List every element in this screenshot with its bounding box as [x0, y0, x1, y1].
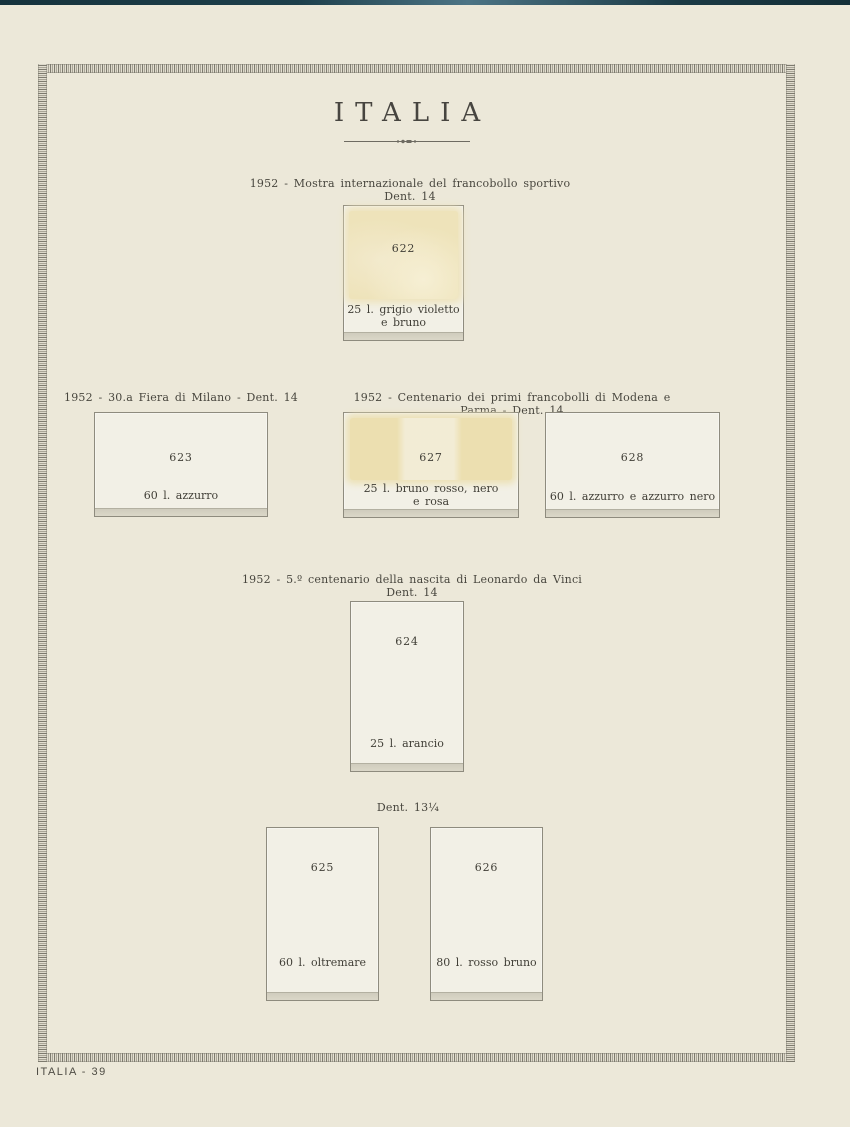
section-heading-leonardo: 1952 - 5.º centenario della nascita di L…: [2, 573, 822, 599]
stamp-caption: 80 l. rosso bruno: [431, 957, 542, 970]
page-footer: ITALIA - 39: [36, 1066, 107, 1078]
stamp-slot-627: 627 25 l. bruno rosso, nero e rosa: [343, 412, 519, 518]
section-heading-dent-13-1-4: Dent. 13¼: [0, 801, 816, 814]
stamp-number: 625: [267, 861, 378, 874]
stamp-number: 628: [546, 451, 719, 464]
mount-pocket-edge: [344, 509, 518, 517]
stamp-caption: 25 l. grigio violetto e bruno: [344, 304, 463, 329]
caption-line: 25 l. grigio violetto: [344, 304, 463, 317]
mount-pocket-edge: [546, 509, 719, 517]
stamp-slot-624: 624 25 l. arancio: [350, 601, 464, 772]
title-block: ITALIA: [0, 98, 814, 150]
ghost-stamp-image: [350, 418, 512, 480]
stamp-slot-622: 622 25 l. grigio violetto e bruno: [343, 205, 464, 341]
mount-pocket-edge: [351, 763, 463, 771]
heading-dent: Dent. 14: [2, 586, 822, 599]
border-top-band: [38, 64, 795, 73]
stamp-number: 624: [351, 635, 463, 648]
stamp-caption: 25 l. bruno rosso, nero e rosa: [344, 483, 518, 508]
stamp-number: 627: [344, 451, 518, 464]
mount-pocket-edge: [95, 508, 267, 516]
mount-pocket-edge: [267, 992, 378, 1000]
stamp-caption: 60 l. azzurro e azzurro nero: [546, 491, 719, 504]
border-right-band: [786, 64, 795, 1062]
stamp-caption: 25 l. arancio: [351, 738, 463, 751]
stamp-caption: 60 l. oltremare: [267, 957, 378, 970]
caption-line: e bruno: [344, 317, 463, 330]
stamp-number: 623: [95, 451, 267, 464]
section-heading-fiera-milano: 1952 - 30.a Fiera di Milano - Dent. 14: [0, 391, 362, 404]
heading-dent: Dent. 13¼: [0, 801, 816, 814]
scanner-edge: [0, 0, 850, 5]
stamp-caption: 60 l. azzurro: [95, 490, 267, 503]
page-title: ITALIA: [0, 98, 814, 128]
stamp-slot-628: 628 60 l. azzurro e azzurro nero: [545, 412, 720, 518]
stamp-number: 626: [431, 861, 542, 874]
section-heading-sportivo: 1952 - Mostra internazionale del francob…: [0, 177, 820, 203]
heading-dent: Dent. 14: [0, 190, 820, 203]
stamp-slot-623: 623 60 l. azzurro: [94, 412, 268, 517]
caption-line: e rosa: [344, 496, 518, 509]
caption-line: 25 l. bruno rosso, nero: [344, 483, 518, 496]
stamp-number: 622: [344, 242, 463, 255]
heading-line: 1952 - 30.a Fiera di Milano - Dent. 14: [0, 391, 362, 404]
heading-line: 1952 - Mostra internazionale del francob…: [0, 177, 820, 190]
mount-pocket-edge: [344, 332, 463, 340]
album-page: ITALIA 1952 - Mostra internazionale del …: [0, 0, 850, 1127]
stamp-slot-626: 626 80 l. rosso bruno: [430, 827, 543, 1001]
heading-line: 1952 - 5.º centenario della nascita di L…: [2, 573, 822, 586]
border-left-band: [38, 64, 47, 1062]
title-ornament: [0, 131, 814, 150]
stamp-slot-625: 625 60 l. oltremare: [266, 827, 379, 1001]
ornament-divider-icon: [342, 137, 472, 146]
ghost-stamp-image: [349, 211, 458, 299]
mount-pocket-edge: [431, 992, 542, 1000]
border-bottom-band: [38, 1053, 795, 1062]
